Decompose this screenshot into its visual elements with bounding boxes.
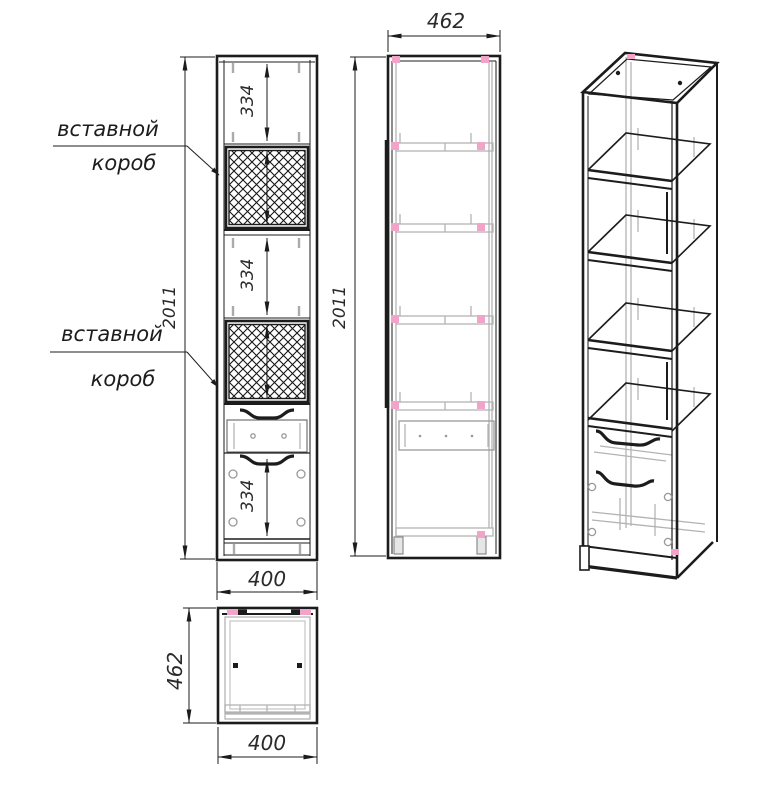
callout-top-line1: вставной [57, 117, 159, 141]
cabinet-technical-drawing: 334 334 334 2011 400 вставной короб вста… [0, 0, 777, 796]
dim-section-top: 334 [238, 85, 258, 117]
side-dimensions: 462 2011 [330, 9, 500, 556]
dim-front-width: 400 [248, 567, 286, 591]
drawer-handle [240, 410, 294, 418]
dim-top-width: 400 [248, 731, 286, 755]
dim-side-height: 2011 [330, 286, 350, 329]
callout-bottom-line1: вставной [61, 322, 163, 346]
side-shelf-1 [391, 133, 493, 151]
dim-section-middle: 334 [238, 259, 258, 291]
iso-shelves [588, 133, 710, 437]
dim-front-height: 2011 [160, 286, 180, 329]
callout-basket-top: вставной короб [53, 117, 219, 175]
side-shelf-2 [391, 214, 493, 232]
dim-top-depth: 462 [163, 652, 187, 690]
top-dimensions: 462 400 [163, 608, 317, 764]
wire-basket-top [226, 147, 308, 228]
drawer-front [227, 410, 307, 452]
dim-section-door: 334 [238, 480, 258, 512]
side-view: 462 2011 [330, 9, 500, 558]
side-drawer-box [399, 421, 494, 450]
dim-side-depth: 462 [427, 9, 465, 33]
iso-door-handle [596, 472, 654, 486]
iso-view [580, 53, 717, 578]
iso-drawer-handle [596, 431, 660, 445]
side-shelf-3 [391, 306, 493, 324]
front-view: 334 334 334 2011 400 вставной короб вста… [50, 56, 317, 600]
callout-basket-bottom: вставной короб [50, 322, 218, 391]
callout-bottom-line2: короб [91, 367, 156, 391]
drawing-sheet: 334 334 334 2011 400 вставной короб вста… [0, 0, 777, 796]
top-view: 462 400 [163, 608, 317, 764]
side-bottom [394, 528, 493, 554]
side-shelf-4 [391, 392, 493, 410]
side-carcass [388, 56, 500, 558]
wire-basket-bottom [226, 321, 308, 402]
callout-top-line2: короб [92, 151, 157, 175]
